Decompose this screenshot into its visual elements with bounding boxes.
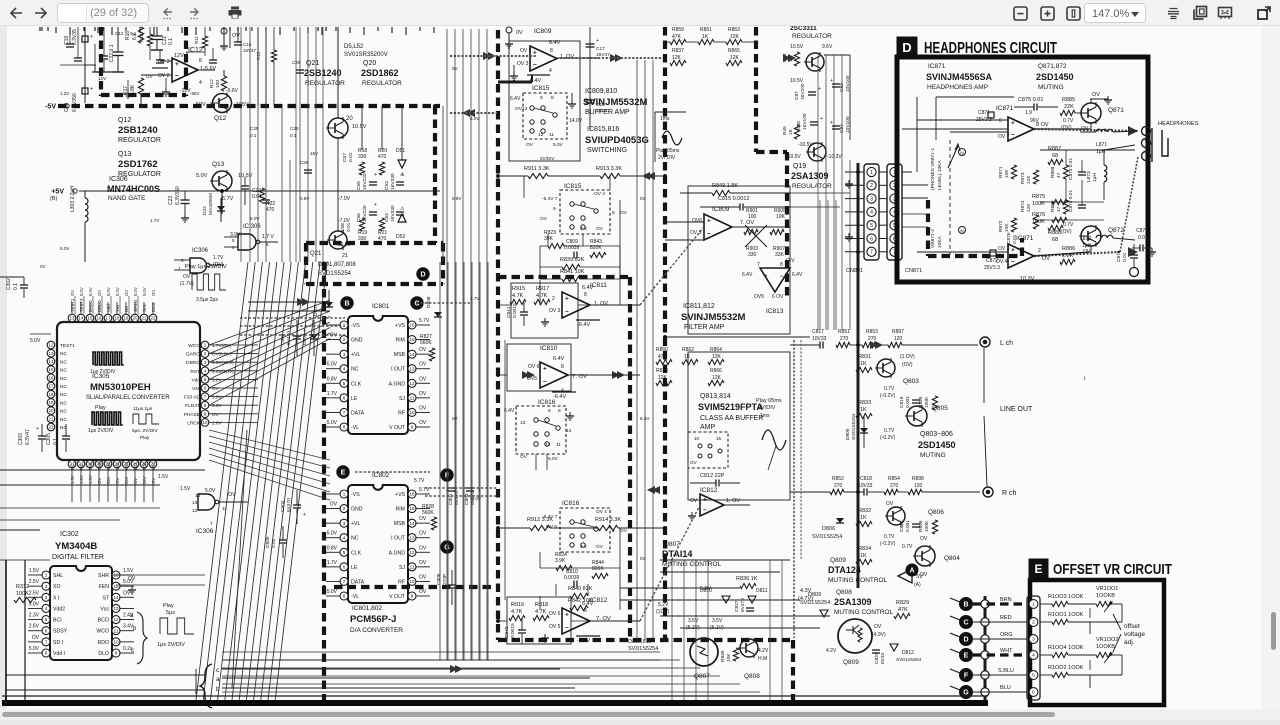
svg-text:X I: X I — [53, 595, 59, 601]
svg-text:BLU: BLU — [1000, 685, 1011, 691]
svg-text:16V100: 16V100 — [800, 83, 806, 100]
svg-text:24V: 24V — [106, 476, 111, 484]
svg-text:ST: ST — [102, 595, 109, 601]
svg-text:R1OO3 1OOK: R1OO3 1OOK — [1048, 594, 1084, 600]
svg-text:15: 15 — [409, 506, 415, 511]
svg-text:Play: Play — [163, 603, 174, 609]
svg-text:3: 3 — [343, 352, 346, 357]
svg-text:OV: OV — [419, 362, 427, 368]
svg-text:12K: 12K — [712, 354, 722, 360]
svg-text:TEST2: TEST2 — [70, 298, 75, 312]
svg-text:OV: OV — [330, 502, 338, 508]
svg-text:voltage: voltage — [1124, 631, 1145, 638]
svg-text:C806: C806 — [436, 573, 442, 585]
svg-text:(1.OV): (1.OV) — [900, 354, 915, 360]
svg-text:Play: Play — [140, 435, 150, 441]
svg-text:10: 10 — [694, 436, 700, 441]
svg-text:5.0V: 5.0V — [327, 531, 338, 537]
svg-text:2SA1309: 2SA1309 — [791, 171, 829, 181]
svg-text:13: 13 — [70, 316, 75, 321]
svg-text:1.7V: 1.7V — [327, 560, 338, 566]
svg-text:39K: 39K — [544, 236, 554, 242]
svg-text:5.0V: 5.0V — [106, 287, 111, 296]
svg-text:6.4V: 6.4V — [582, 285, 594, 291]
svg-text:10.5V: 10.5V — [352, 124, 367, 130]
svg-text:10K: 10K — [776, 214, 786, 220]
svg-text:+: + — [36, 426, 39, 432]
svg-text:17: 17 — [49, 384, 54, 389]
svg-text:5.0V: 5.0V — [115, 287, 120, 296]
svg-text:OV 9: OV 9 — [546, 524, 557, 530]
svg-text:FEN: FEN — [99, 584, 110, 590]
svg-text:OV6: OV6 — [692, 218, 702, 224]
svg-text:7: 7 — [870, 250, 873, 256]
svg-text:2: 2 — [1032, 620, 1035, 626]
svg-text:1μs 2V/DIV: 1μs 2V/DIV — [88, 428, 114, 434]
svg-text:NC: NC — [70, 464, 75, 470]
svg-text:(A): (A) — [914, 582, 921, 588]
svg-text:R885: R885 — [1062, 97, 1075, 103]
svg-text:0.8V: 0.8V — [327, 545, 338, 551]
svg-text:SHL: SHL — [142, 303, 147, 312]
svg-text:0.7V: 0.7V — [884, 386, 895, 392]
svg-text:3.5V: 3.5V — [712, 618, 723, 624]
svg-text:R861: R861 — [700, 27, 712, 33]
svg-text:12K: 12K — [730, 55, 740, 61]
svg-text:6.4V: 6.4V — [742, 272, 753, 278]
svg-text:OV: OV — [128, 576, 136, 582]
svg-text:OV: OV — [419, 589, 427, 595]
svg-text:6.4V: 6.4V — [640, 416, 650, 421]
svg-text:Q13: Q13 — [212, 161, 225, 168]
svg-text:R918: R918 — [535, 602, 548, 608]
svg-text:6: 6 — [343, 396, 346, 401]
svg-text:14: 14 — [49, 359, 54, 364]
svg-text:19: 19 — [124, 316, 129, 321]
svg-text:2SB1240: 2SB1240 — [118, 125, 158, 136]
svg-text:OV 6: OV 6 — [549, 611, 561, 617]
svg-text:10V100: 10V100 — [845, 116, 851, 133]
svg-text:1K: 1K — [860, 361, 867, 367]
svg-text:LRCK: LRCK — [151, 458, 156, 470]
svg-text:E: E — [341, 470, 346, 477]
svg-text:D22: D22 — [202, 206, 208, 215]
svg-text:Q871,872: Q871,872 — [1038, 63, 1067, 70]
svg-text:4: 4 — [199, 80, 202, 86]
svg-text:16: 16 — [409, 492, 415, 497]
svg-text:D806: D806 — [822, 526, 835, 532]
svg-text:MUTING: MUTING — [1038, 84, 1064, 91]
svg-text:BRN: BRN — [1000, 597, 1012, 603]
svg-text:OV 3: OV 3 — [998, 246, 1010, 252]
svg-text:R45: R45 — [782, 126, 788, 135]
svg-text:R897: R897 — [892, 329, 904, 335]
svg-text:R889: R889 — [1050, 166, 1056, 178]
svg-text:D52: D52 — [396, 234, 405, 240]
svg-text:-6.4V: -6.4V — [577, 322, 590, 328]
svg-text:SLIAL/PARALEL CONVERTER: SLIAL/PARALEL CONVERTER — [86, 395, 170, 401]
svg-text:2V/DIV: 2V/DIV — [758, 405, 776, 411]
svg-text:OV: OV — [419, 545, 427, 551]
svg-text:C23: C23 — [168, 196, 174, 205]
svg-text:C837: C837 — [874, 652, 880, 664]
svg-text:1K: 1K — [860, 515, 867, 521]
svg-text:4.7K: 4.7K — [535, 609, 547, 615]
svg-text:16V330: 16V330 — [390, 173, 396, 190]
svg-text:Q808: Q808 — [836, 589, 852, 596]
svg-text:+: + — [90, 86, 93, 92]
svg-text:B: B — [344, 301, 349, 308]
svg-text:R834: R834 — [858, 546, 871, 552]
svg-text:2SA1309: 2SA1309 — [834, 597, 872, 607]
svg-text:R836 1K: R836 1K — [736, 576, 758, 582]
svg-text:NC: NC — [60, 384, 67, 390]
svg-text:4: 4 — [1032, 653, 1035, 659]
svg-text:(OV): (OV) — [902, 362, 913, 368]
svg-text:0V: 0V — [452, 416, 459, 421]
svg-text:OV: OV — [133, 478, 138, 484]
svg-text:GND: GND — [351, 338, 363, 344]
svg-text:1.5V: 1.5V — [79, 475, 84, 484]
svg-text:1.7V: 1.7V — [213, 255, 224, 261]
svg-text:SWITCHING: SWITCHING — [587, 147, 627, 154]
svg-text:6.4V: 6.4V — [510, 96, 521, 102]
svg-text:OV: OV — [419, 391, 427, 397]
svg-text:1: 1 — [45, 573, 48, 578]
svg-text:OV 5: OV 5 — [549, 624, 561, 630]
svg-text:−: − — [533, 62, 537, 69]
svg-text:0V: 0V — [640, 196, 647, 201]
svg-text:0V: 0V — [640, 556, 647, 561]
svg-text:R914 3.3K: R914 3.3K — [595, 517, 621, 523]
svg-text:9.6V: 9.6V — [822, 44, 833, 50]
svg-text:OV: OV — [1092, 92, 1100, 98]
svg-text:18: 18 — [49, 392, 54, 397]
svg-text:C25: C25 — [250, 126, 259, 131]
svg-text:A: A — [909, 568, 914, 575]
svg-text:-50V: -50V — [194, 102, 206, 108]
svg-text:R873: R873 — [1020, 172, 1026, 184]
svg-text:10.5V: 10.5V — [790, 44, 804, 50]
svg-text:6: 6 — [870, 236, 873, 242]
svg-text:R863: R863 — [728, 27, 740, 33]
svg-text:YM3404B: YM3404B — [55, 541, 97, 552]
svg-text:OV5: OV5 — [754, 294, 764, 300]
svg-text:R896: R896 — [918, 520, 924, 532]
svg-text:C22 0.1: C22 0.1 — [109, 44, 115, 62]
svg-text:XO: XO — [53, 584, 61, 590]
svg-text:REGULATOR: REGULATOR — [792, 33, 832, 40]
svg-text:IC809: IC809 — [712, 206, 730, 213]
svg-text:1.5V: 1.5V — [123, 568, 134, 574]
svg-text:1μs 2V/DIV: 1μs 2V/DIV — [157, 642, 185, 648]
svg-text:R837: R837 — [672, 48, 684, 54]
svg-text:IC815,816: IC815,816 — [587, 126, 619, 133]
svg-text:7: 7 — [757, 262, 760, 268]
svg-text:13: 13 — [409, 535, 415, 540]
svg-text:10V33: 10V33 — [812, 336, 827, 342]
svg-text:8: 8 — [343, 425, 346, 430]
svg-text:TEST1: TEST1 — [60, 343, 75, 349]
svg-text:11: 11 — [549, 132, 554, 138]
svg-text:22K: 22K — [1064, 104, 1074, 110]
svg-text:8: 8 — [780, 262, 783, 268]
svg-text:11: 11 — [114, 628, 119, 633]
svg-text:2: 2 — [1038, 248, 1041, 254]
svg-text:25V3.3: 25V3.3 — [984, 265, 1000, 271]
svg-text:2: 2 — [552, 296, 555, 302]
svg-text:Q12: Q12 — [214, 115, 227, 122]
svg-text:10: 10 — [113, 640, 119, 645]
svg-text:OV: OV — [419, 516, 427, 522]
svg-text:OV: OV — [151, 290, 156, 296]
svg-text:adj.: adj. — [1124, 639, 1135, 646]
svg-text:Vdd: Vdd — [106, 462, 111, 470]
svg-text:R887: R887 — [1048, 146, 1061, 152]
svg-text:6: 6 — [548, 408, 551, 414]
svg-text:E: E — [964, 653, 969, 660]
svg-text:-5.0V: -5.0V — [325, 589, 338, 595]
svg-text:5.0V: 5.0V — [553, 142, 564, 148]
svg-text:4: 4 — [870, 210, 873, 216]
svg-text:R835: R835 — [720, 650, 726, 662]
svg-text:REGULATOR: REGULATOR — [305, 80, 345, 87]
svg-text:DLO: DLO — [98, 651, 109, 657]
svg-text:IC815: IC815 — [564, 183, 582, 190]
svg-text:SVIUPD4053G: SVIUPD4053G — [585, 135, 649, 146]
svg-text:R874: R874 — [1020, 200, 1026, 212]
svg-text:HEADPHONES CIRCUIT: HEADPHONES CIRCUIT — [924, 40, 1057, 57]
svg-text:5μs: 5μs — [166, 610, 175, 616]
svg-text:D809: D809 — [808, 592, 821, 598]
svg-text:5.0V: 5.0V — [548, 456, 559, 462]
svg-text:13: 13 — [409, 366, 415, 371]
svg-text:D811: D811 — [756, 588, 768, 594]
svg-text:OV: OV — [419, 531, 427, 537]
svg-text:8: 8 — [550, 48, 553, 54]
svg-text:R832: R832 — [858, 508, 871, 514]
svg-text:SVD1S5254: SVD1S5254 — [812, 534, 842, 540]
svg-text:Q806: Q806 — [928, 509, 944, 516]
svg-text:OV: OV — [97, 478, 102, 484]
svg-text:12: 12 — [545, 442, 551, 448]
svg-text:R839 82K: R839 82K — [560, 257, 585, 263]
svg-text:L873: L873 — [1086, 171, 1092, 182]
svg-text:Vdd: Vdd — [191, 377, 200, 383]
svg-text:OFFSET VR CIRCUIT: OFFSET VR CIRCUIT — [1053, 561, 1172, 578]
svg-text:1: 1 — [1032, 602, 1035, 608]
svg-text:IC809: IC809 — [534, 28, 552, 35]
svg-text:12K: 12K — [730, 34, 740, 40]
svg-text:24V: 24V — [142, 476, 147, 484]
svg-text:6V470: 6V470 — [286, 331, 292, 345]
svg-text:1K: 1K — [860, 407, 867, 413]
svg-text:10: 10 — [409, 579, 415, 584]
svg-text:(OV): (OV) — [1061, 229, 1072, 235]
svg-text:Vss: Vss — [192, 386, 201, 392]
svg-text:+: + — [1011, 120, 1015, 127]
svg-text:−: − — [543, 378, 547, 385]
svg-text:CLK: CLK — [351, 381, 362, 387]
svg-text:1: 1 — [343, 323, 346, 328]
svg-text:FLDAT: FLDAT — [185, 403, 200, 409]
svg-text:C303: C303 — [18, 433, 24, 445]
svg-text:C55: C55 — [356, 181, 362, 190]
svg-text:1.7 V: 1.7 V — [262, 234, 274, 240]
svg-text:N: N — [960, 151, 963, 156]
svg-text:OV: OV — [596, 544, 604, 550]
svg-text:Vdd I: Vdd I — [53, 651, 65, 657]
svg-text:14: 14 — [113, 595, 119, 600]
svg-text:68: 68 — [1052, 153, 1058, 159]
svg-text:1ms: 1ms — [760, 413, 770, 419]
svg-text:7: 7 — [210, 521, 213, 527]
svg-text:NC: NC — [60, 376, 67, 382]
svg-text:14: 14 — [409, 521, 415, 526]
svg-text:OV: OV — [1042, 256, 1050, 262]
svg-text:R829: R829 — [896, 600, 909, 606]
svg-text:11μs 1μs: 11μs 1μs — [133, 406, 153, 412]
svg-text:0.7V: 0.7V — [902, 544, 913, 550]
svg-text:−: − — [1011, 132, 1015, 139]
svg-text:C801: C801 — [448, 493, 454, 505]
svg-text:22: 22 — [49, 425, 54, 430]
svg-text:RF: RF — [398, 579, 405, 585]
svg-text:10V33: 10V33 — [858, 483, 873, 489]
svg-text:+: + — [830, 120, 833, 126]
svg-text:I OUT: I OUT — [391, 367, 406, 373]
svg-text:10: 10 — [203, 420, 208, 425]
svg-text:C57: C57 — [342, 153, 348, 162]
svg-text:5.7V: 5.7V — [414, 478, 425, 484]
svg-text:C879: C879 — [1136, 228, 1148, 234]
svg-text:+VS: +VS — [395, 492, 405, 498]
svg-text:+: + — [707, 218, 711, 225]
svg-text:1.5V: 1.5V — [180, 486, 191, 492]
svg-text:12V: 12V — [174, 53, 184, 59]
svg-text:I OUT: I OUT — [391, 536, 406, 542]
svg-text:OV: OV — [32, 635, 40, 641]
svg-text:IC871: IC871 — [996, 105, 1014, 112]
svg-text:OV: OV — [1083, 249, 1091, 255]
svg-text:6.4V: 6.4V — [582, 601, 594, 607]
svg-text:16V330: 16V330 — [390, 205, 396, 222]
svg-text:SHR: SHR — [97, 461, 102, 470]
svg-text:-6.4V 7: -6.4V 7 — [542, 196, 558, 202]
svg-text:SHR: SHR — [98, 573, 109, 579]
svg-text:C818: C818 — [860, 476, 872, 482]
svg-text:2: 2 — [45, 584, 48, 589]
svg-text:18: 18 — [115, 316, 120, 321]
svg-text:11: 11 — [410, 396, 415, 401]
svg-text:LEVEL) 10KA: LEVEL) 10KA — [937, 160, 943, 190]
svg-text:1. OV: 1. OV — [594, 301, 608, 307]
svg-text:24V: 24V — [124, 476, 129, 484]
svg-text:3: 3 — [870, 196, 873, 202]
svg-text:IC302: IC302 — [60, 531, 79, 538]
svg-text:-5.0V: -5.0V — [470, 496, 482, 501]
svg-text:SVD1S5254: SVD1S5254 — [800, 600, 830, 606]
svg-text:IC12: IC12 — [188, 47, 203, 54]
svg-text:2SD1450: 2SD1450 — [918, 440, 956, 450]
svg-text:C835: C835 — [265, 536, 271, 548]
svg-text:47: 47 — [1056, 206, 1062, 212]
svg-text:1. OV: 1. OV — [726, 498, 740, 504]
svg-text:R851: R851 — [838, 329, 850, 335]
svg-text:OV 7: OV 7 — [998, 134, 1010, 140]
svg-text:9: 9 — [411, 425, 414, 430]
svg-text:120: 120 — [894, 336, 903, 342]
svg-text:OV: OV — [886, 501, 894, 507]
svg-text:R865: R865 — [728, 48, 740, 54]
svg-text:0.7V: 0.7V — [1063, 118, 1074, 124]
svg-text:1μH: 1μH — [1082, 243, 1092, 249]
svg-text:OV: OV — [115, 478, 120, 484]
svg-text:OV 4: OV 4 — [996, 259, 1008, 265]
svg-text:Q813,814: Q813,814 — [700, 393, 731, 400]
svg-text:NC: NC — [60, 392, 67, 398]
svg-text:1μs 2V/DIV: 1μs 2V/DIV — [90, 369, 116, 375]
svg-text:+: + — [90, 34, 93, 40]
svg-text:RDO: RDO — [97, 640, 109, 646]
svg-text:IC801: IC801 — [372, 303, 390, 310]
svg-text:68: 68 — [1052, 237, 1058, 243]
svg-text:(PHONES VR871-1: (PHONES VR871-1 — [930, 148, 936, 190]
svg-text:0.0015: 0.0015 — [512, 303, 518, 318]
svg-text:OV 2: OV 2 — [158, 73, 170, 79]
svg-text:5.0V: 5.0V — [88, 287, 93, 296]
svg-text:1.5V: 1.5V — [29, 568, 40, 574]
svg-text:10K: 10K — [726, 653, 732, 662]
svg-text:IC816: IC816 — [538, 399, 556, 406]
svg-text:+: + — [830, 78, 833, 84]
svg-text:-6.4V: -6.4V — [577, 638, 590, 644]
svg-text:C26: C26 — [290, 126, 299, 131]
svg-text:7: 7 — [343, 410, 346, 415]
svg-text:5: 5 — [612, 528, 615, 534]
svg-text:6.4V: 6.4V — [504, 408, 515, 414]
svg-text:+: + — [374, 202, 377, 208]
svg-text:OV: OV — [124, 290, 129, 296]
svg-text:5.0V: 5.0V — [30, 338, 41, 344]
svg-text:5.2V: 5.2V — [658, 602, 669, 608]
svg-text:2.6V: 2.6V — [212, 420, 222, 425]
svg-text:100K: 100K — [16, 591, 29, 597]
svg-text:OV 4: OV 4 — [596, 509, 607, 515]
svg-text:5: 5 — [343, 381, 346, 386]
svg-text:SVINJM5532M: SVINJM5532M — [681, 312, 746, 323]
svg-text:DATA: DATA — [351, 410, 365, 416]
svg-text:3.5μs 2μs: 3.5μs 2μs — [196, 297, 218, 303]
svg-text:8: 8 — [199, 58, 202, 64]
svg-text:8: 8 — [343, 594, 346, 599]
svg-text:SJ: SJ — [399, 565, 405, 571]
svg-text:OV: OV — [70, 290, 75, 296]
svg-text:SDSY: SDSY — [53, 629, 68, 635]
svg-text:12: 12 — [113, 617, 119, 622]
svg-text:11: 11 — [410, 565, 415, 570]
svg-text:BCO: BCO — [98, 618, 109, 624]
svg-text:C53: C53 — [384, 181, 390, 190]
svg-text:R886: R886 — [1062, 246, 1075, 252]
svg-text:1: 1 — [343, 492, 346, 497]
svg-text:SVIM5219FPTA: SVIM5219FPTA — [698, 402, 763, 412]
svg-text:OV: OV — [690, 460, 698, 465]
svg-text:Vss: Vss — [115, 305, 120, 312]
svg-text:D5,L52: D5,L52 — [344, 44, 364, 50]
svg-text:A.GND: A.GND — [389, 381, 406, 387]
svg-text:R1OO2 1OOK: R1OO2 1OOK — [1048, 665, 1084, 671]
